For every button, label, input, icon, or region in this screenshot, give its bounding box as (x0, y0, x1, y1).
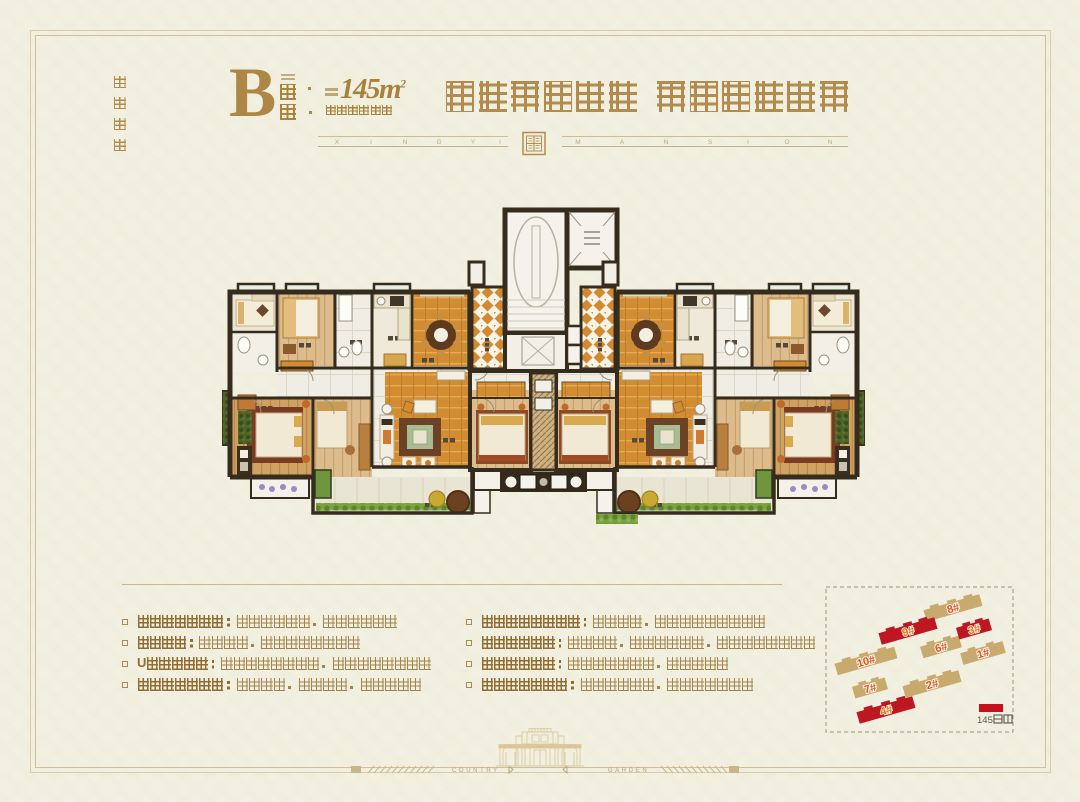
svg-text:G: G (436, 139, 441, 146)
svg-text:N: N (828, 139, 833, 146)
svg-text:O: O (784, 139, 789, 146)
svg-text:Y: Y (471, 139, 476, 146)
svg-text:N: N (664, 139, 669, 146)
svg-text:I: I (747, 139, 749, 146)
svg-text:S: S (708, 139, 713, 146)
svg-text:M: M (575, 139, 580, 146)
svg-text:10#: 10# (856, 654, 877, 671)
svg-text:X: X (335, 139, 340, 146)
svg-text:COUNTRY: COUNTRY (452, 768, 500, 774)
svg-text:I: I (370, 139, 372, 146)
svg-text:GARDEN: GARDEN (608, 768, 649, 774)
svg-text:A: A (620, 139, 625, 146)
svg-text:N: N (403, 139, 408, 146)
svg-text:I: I (499, 139, 501, 146)
svg-text:145: 145 (977, 715, 993, 726)
